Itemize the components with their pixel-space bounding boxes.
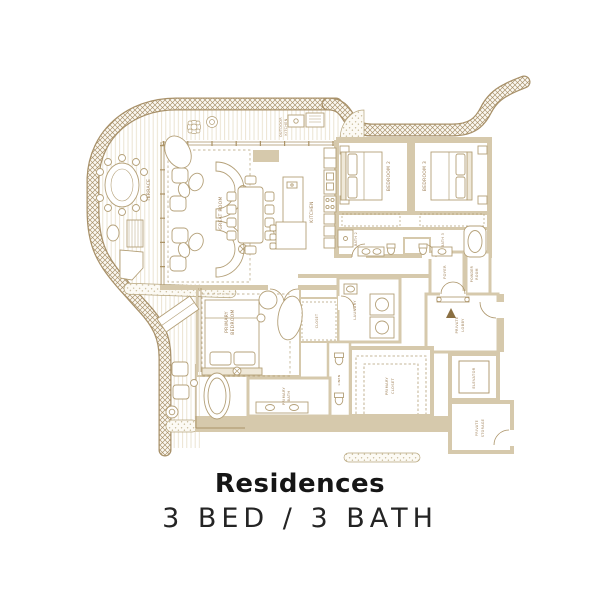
- label-outdoor-kitchen-2: KITCHEN: [284, 118, 288, 135]
- label-closet: CLOSET: [315, 314, 319, 328]
- caption: Residences 3 BED / 3 BATH: [0, 470, 600, 534]
- label-foyer: FOYER: [442, 265, 447, 279]
- label-private-storage-2: STORAGE: [481, 419, 485, 438]
- label-primary-bath-1: PRIMARY: [282, 386, 286, 405]
- label-private-lobby-1: PRIVATE: [455, 316, 459, 333]
- screenshot: TERRACE GREAT ROOM KITCHEN OUTDOOR KITCH…: [0, 0, 600, 600]
- label-primary-closet-1: PRIMARY: [385, 376, 389, 395]
- label-primary-closet-2: CLOSET: [391, 378, 395, 395]
- label-terrace: TERRACE: [146, 179, 152, 203]
- label-powder-2: ROOM: [475, 268, 479, 279]
- label-bath3: BATH 3: [441, 233, 445, 247]
- label-bedroom2: BEDROOM 2: [386, 161, 392, 191]
- label-primary-bedroom-1: PRIMARY: [224, 311, 230, 333]
- label-bedroom3: BEDROOM 3: [422, 161, 428, 191]
- lobby-bench: [437, 297, 469, 302]
- label-laundry: LAUNDRY: [353, 300, 357, 320]
- plan-subtitle: 3 BED / 3 BATH: [0, 503, 600, 534]
- label-primary-bedroom-2: BEDROOM: [230, 309, 236, 334]
- label-powder-1: POWDER: [470, 265, 474, 282]
- label-kitchen: KITCHEN: [309, 201, 315, 222]
- label-bath2: BATH 2: [354, 232, 358, 246]
- label-primary-bath-2: BATH: [287, 391, 291, 402]
- label-outdoor-kitchen-1: OUTDOOR: [279, 117, 283, 137]
- kitchen-fixtures: [270, 148, 336, 249]
- label-elevator: ELEVATOR: [472, 367, 476, 388]
- label-private-storage-1: PRIVATE: [475, 420, 479, 436]
- label-linen: LINEN: [337, 375, 341, 386]
- plan-title: Residences: [0, 470, 600, 500]
- label-great-room: GREAT ROOM: [218, 196, 224, 229]
- label-private-lobby-2: LOBBY: [461, 318, 465, 332]
